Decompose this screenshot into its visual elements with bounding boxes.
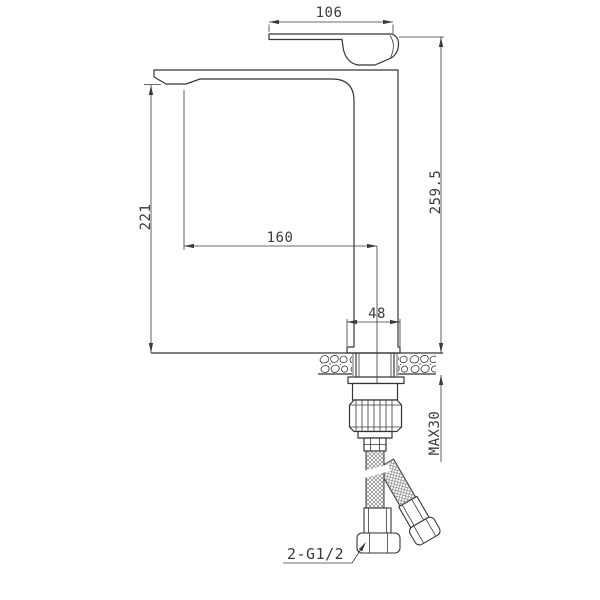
dimension-handle-length: 106 — [269, 5, 393, 34]
dim-160-label: 160 — [267, 230, 294, 246]
dim-106-label: 106 — [316, 5, 343, 21]
dim-160-arrow-left — [184, 244, 194, 248]
dimension-max-thickness: MAX30 — [427, 375, 443, 462]
faucet-installation-drawing: 106 259.5 221 160 48 — [0, 0, 600, 600]
lock-washer — [348, 377, 404, 384]
dim-221-arrow-bottom — [149, 343, 153, 353]
dim-259-5-arrow-bottom — [439, 343, 443, 353]
ribbed-mounting-nut — [350, 400, 402, 432]
dim-106-arrow-left — [269, 20, 279, 24]
nut-step — [358, 432, 392, 439]
dim-221-arrow-top — [149, 85, 153, 95]
dim-48-arrow-left — [347, 320, 357, 324]
handle-cap-contour — [390, 36, 393, 58]
mounting-sleeve — [353, 384, 398, 401]
faucet-body — [154, 34, 400, 383]
stone-hatch-right — [398, 354, 436, 374]
dim-259-5-arrow-top — [439, 37, 443, 47]
connection-callout: 2-G1/2 — [283, 542, 366, 563]
dim-160-arrow-right — [367, 244, 377, 248]
dim-259-5-label: 259.5 — [428, 170, 444, 215]
dim-max30-arrow — [439, 375, 443, 385]
front-hose-nut — [357, 533, 400, 553]
dimension-overall-height: 259.5 — [399, 37, 444, 353]
connection-label: 2-G1/2 — [287, 545, 344, 563]
dim-48-label: 48 — [368, 306, 386, 322]
mounting-hardware — [348, 353, 404, 451]
dimension-outlet-height: 221 — [138, 85, 161, 354]
dim-106-arrow-right — [383, 20, 393, 24]
faucet-body-outline — [154, 70, 400, 353]
dimension-spout-reach: 160 — [184, 90, 377, 250]
faucet-handle — [269, 34, 399, 65]
front-hose-braid — [366, 451, 384, 508]
hose-adapter-fitting — [364, 438, 386, 451]
dimension-base-width: 48 — [347, 306, 400, 346]
front-hose-ferrule — [364, 508, 391, 533]
stone-hatch-left — [318, 354, 352, 374]
technical-drawing-canvas: 106 259.5 221 160 48 — [0, 0, 600, 600]
dim-221-label: 221 — [138, 204, 154, 231]
countertop-cross-section — [151, 353, 443, 376]
